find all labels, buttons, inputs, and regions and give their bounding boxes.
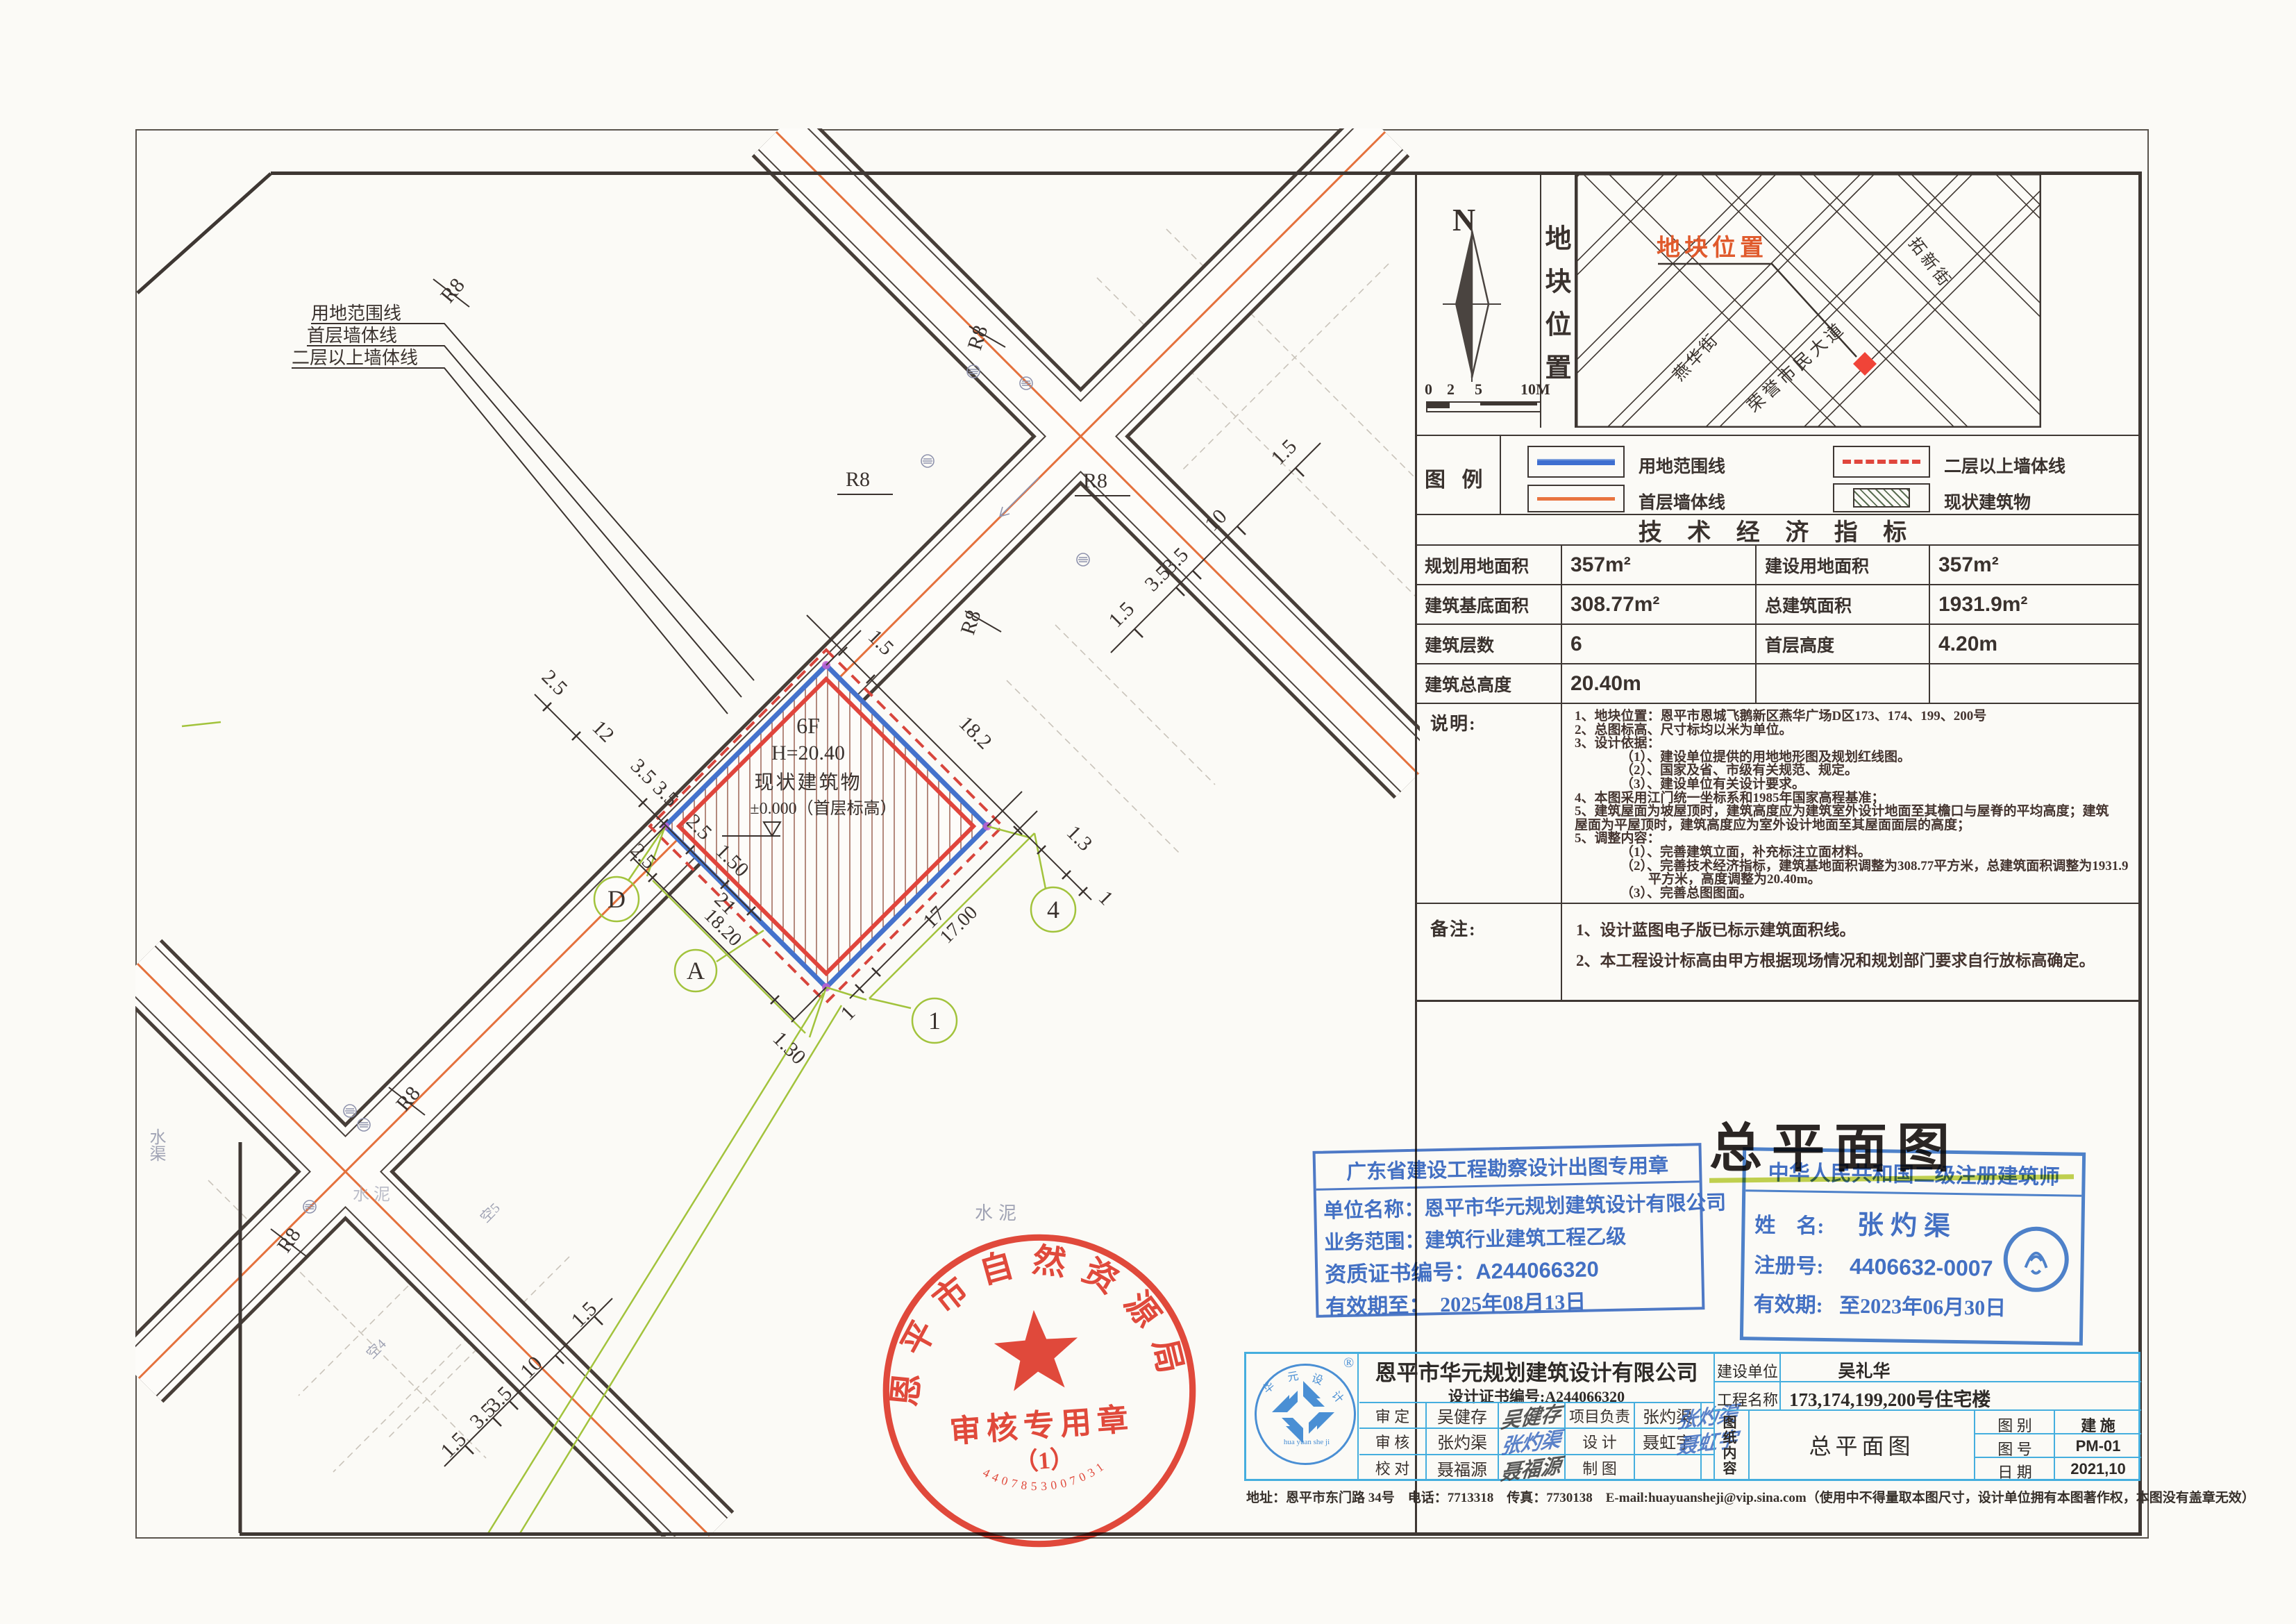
dim-label: 1.30 [768,1027,810,1069]
person-name: 张灼渠 [1427,1429,1499,1455]
notes-block: 1、地块位置：恩平市恩城飞鹅新区燕华广场D区173、174、199、200号 2… [1575,710,2138,900]
content-label: 图纸内容 [1718,1415,1738,1479]
dim-label: 1.5 [567,1297,601,1332]
project-name: 173,174,199,200号住宅楼 [1789,1384,1991,1412]
role-label: 审 定 [1359,1403,1427,1429]
indicator-value: 20.40m [1562,664,1757,704]
company-name: 恩平市华元规划建筑设计有限公司 [1359,1355,1713,1387]
indicator-label: 建设用地面积 [1757,546,1930,585]
building-name: 现状建筑物 [754,771,862,794]
scale-tick: 0 [1425,380,1432,399]
indicator-label [1757,664,1930,704]
dim-label: 1.3 [1062,821,1097,855]
legend-title-divider [1500,435,1501,514]
sheet-content: 总平面图 [1750,1429,1974,1461]
red-approval-stamp: 恩平市自然资源局 审核专用章 （1） 4407853007031 [865,1216,1214,1565]
registered-mark: ® [1343,1355,1354,1371]
red-stamp-number: （1） [1013,1445,1075,1476]
tb-line [2054,1411,2055,1479]
meta-key: 图 别 [1977,1414,2053,1436]
building-floors: 6F [796,713,820,738]
notes-label: 说明: [1430,710,1477,735]
architect-stamp-header: 中华人民共和国二级注册建筑师 [1745,1150,2082,1197]
scale-tick: 2 [1447,380,1455,399]
architect-valid: 至2023年06月30日 [1839,1294,2006,1320]
remark-line: 1、设计蓝图电子版已标示建筑面积线。 [1576,915,2095,946]
meta-key: 图 号 [1977,1437,2053,1459]
remarks-block: 1、设计蓝图电子版已标示建筑面积线。 2、本工程设计标高由甲方根据现场情况和规划… [1576,915,2095,976]
signature-grid: 审 定 吴健存 吴健存 项目负责 张灼渠 张灼渠 审 核 张灼渠 张灼渠 设 计… [1359,1403,1713,1481]
logo-latin: hua yuan she ji [1272,1438,1341,1446]
building-height: H=20.40 [771,742,845,764]
legend-top-border [1416,435,2138,436]
note-line: 3、设计依据： [1575,737,2138,751]
dim-label: 1 [1094,886,1118,910]
architect-seal-icon [2001,1224,2072,1295]
footer-contact-line: 地址：恩平市东门路 34号 电话：7713318 传真：7730138 E-ma… [1246,1487,2143,1506]
dim-label: 18.20 [700,905,746,951]
axis-bubble-1: 1 [928,1007,941,1035]
indicator-value: 6 [1562,625,1757,664]
star-icon [992,1307,1081,1393]
note-line: （3）、建设单位有关设计要求。 [1575,778,2138,792]
location-map: 地块位置 拓新街 燕华街 荣誉市民大道 [1576,174,2041,428]
company-logo-icon: 华 元 设 计 hua yuan she ji [1255,1364,1356,1465]
dim-label: 12 [587,716,619,747]
leader-first-floor: 首层墙体线 [307,326,397,346]
r8-label: R8 [846,468,870,491]
project-label: 工程名称 [1716,1388,1779,1410]
indicator-label: 建筑总高度 [1416,664,1562,704]
cement-label-2: 水泥 [353,1185,394,1204]
leader-upper-wall: 二层以上墙体线 [292,348,418,368]
architect-name-label: 姓 名: [1754,1214,1825,1238]
indicator-label: 规划用地面积 [1416,546,1562,585]
indicator-value: 308.77m² [1562,585,1757,625]
r8-label: R8 [956,608,985,637]
legend-label-first-floor: 首层墙体线 [1639,489,1725,514]
map-plot-label: 地块位置 [1657,235,1768,261]
role-label: 项目负责 [1566,1403,1635,1429]
architect-name: 张灼渠 [1857,1211,1958,1241]
parcel-label: 空5 [477,1200,503,1225]
dim-label: 1.5 [436,1428,471,1462]
meta-value: 建 施 [2056,1414,2140,1436]
tb-line [1357,1354,1359,1479]
note-line: （2）、完善技术经济指标，建筑基地面积调整为308.77平方米，总建筑面积调整为… [1575,860,2138,873]
meta-value: 2021,10 [2056,1460,2140,1478]
tb-line [1713,1354,1715,1479]
remark-line: 2、本工程设计标高由甲方根据现场情况和规划部门要求自行放标高确定。 [1576,946,2095,976]
note-line: （1）、完善建筑立面，补充标注立面材料。 [1575,846,2138,860]
note-line: 4、本图采用江门统一坐标系和1985年国家高程基准； [1575,792,2138,805]
remarks-top-border [1416,903,2138,904]
indicator-label: 建筑层数 [1416,625,1562,664]
r8-label: R8 [1083,469,1107,492]
role-label: 审 核 [1359,1429,1427,1455]
north-arrow-icon [1416,222,1541,396]
indicator-label: 建筑基底面积 [1416,585,1562,625]
legend-swatch-first-floor [1527,485,1625,512]
note-line: 5、建筑屋面为坡屋顶时，建筑高度应为建筑室外设计地面至其檐口与屋脊的平均高度；建… [1575,805,2138,819]
indicator-value [1930,664,2140,704]
note-line: 5、调整内容： [1575,832,2138,846]
role-label: 制 图 [1566,1455,1635,1481]
cement-label: 水泥 [975,1203,1022,1223]
note-line: 屋面为平屋顶时，建筑高度应为室外设计地面至其屋面面层的高度； [1575,819,2138,832]
design-license-stamp: 广东省建设工程勘察设计出图专用章 单位名称：恩平市华元规划建筑设计有限公司 业务… [1313,1143,1705,1318]
architect-reg-label: 注册号: [1754,1254,1824,1278]
note-line: （3）、完善总图图面。 [1575,887,2138,901]
dim-label: 17.00 [936,902,982,948]
dim-label: 2.5 [537,665,572,700]
note-line: （1）、建设单位提供的用地地形图及规划红线图。 [1575,751,2138,764]
dim-label: 1 [836,1001,860,1025]
remarks-divider [1561,903,1562,1000]
note-line: 1、地块位置：恩平市恩城飞鹅新区燕华广场D区173、174、199、200号 [1575,710,2138,723]
axis-bubble-A: A [687,957,705,985]
panel-bottom-border [1416,1000,2138,1002]
note-line: （2）、国家及省、市级有关规范、规定。 [1575,764,2138,778]
dim-label: 1.5 [1104,597,1139,632]
indicator-value: 357m² [1930,546,2140,585]
meta-key: 日 期 [1977,1460,2053,1482]
client-name: 吴礼华 [1781,1357,1947,1382]
indicator-value: 4.20m [1930,625,2140,664]
tb-line [1974,1411,1975,1479]
building-level: ±0.000（首层标高） [750,799,896,818]
legend-title: 图 例 [1425,462,1489,493]
legend-swatch-boundary [1527,446,1625,478]
site-plan-drawing: D A 1 4 1.5 18.2 1.3 1 17 17.00 1 21 18.… [135,128,1420,1537]
role-label: 校 对 [1359,1455,1427,1481]
water-channel-label: 水渠 [146,1128,166,1162]
legend-label-boundary: 用地范围线 [1639,453,1725,478]
meta-value: PM-01 [2056,1437,2140,1455]
indicators-table: 规划用地面积 357m² 建设用地面积 357m² 建筑基底面积 308.77m… [1416,546,2140,704]
person-name: 聂福源 [1427,1455,1499,1481]
indicators-title: 技 术 经 济 指 标 [1416,515,2138,546]
legend-swatch-existing [1833,483,1930,512]
legend-swatch-upper-wall [1833,446,1930,478]
remarks-label: 备注: [1430,915,1477,941]
dim-label: 18.2 [954,712,996,753]
role-label: 设 计 [1566,1429,1635,1455]
legend-label-existing: 现状建筑物 [1944,489,2031,514]
frame-right [2138,171,2142,1536]
dim-label: 3.5 [626,754,661,789]
red-stamp-title: 审核专用章 [948,1401,1134,1449]
scale-tick: 5 [1475,380,1482,399]
leader-boundary: 用地范围线 [311,303,401,324]
legend-label-upper-wall: 二层以上墙体线 [1944,453,2065,478]
wall-line-leaders: 用地范围线 首层墙体线 二层以上墙体线 [292,303,754,714]
location-panel-title: 地块位置 [1543,196,1575,425]
note-line: 平方米，高度调整为20.40m。 [1575,873,2138,887]
indicator-value: 1931.9m² [1930,585,2140,625]
architect-reg-no: 4406632-0007 [1850,1254,1993,1281]
notes-divider [1561,704,1562,903]
note-line: 2、总图标高、尺寸标均以米为单位。 [1575,723,2138,737]
client-label: 建设单位 [1716,1359,1779,1382]
indicator-label: 总建筑面积 [1757,585,1930,625]
axis-bubble-D: D [607,885,626,913]
indicator-value: 357m² [1562,546,1757,585]
title-block: 华 元 设 计 hua yuan she ji ® 恩平市华元规划建筑设计有限公… [1244,1352,2140,1481]
dim-label: 1.5 [1266,435,1301,469]
registered-architect-stamp: 中华人民共和国二级注册建筑师 姓 名: 张灼渠 注册号: 4406632-000… [1740,1147,2086,1346]
indicator-label: 首层高度 [1757,625,1930,664]
architect-valid-label: 有效期: [1753,1293,1823,1317]
person-name: 吴健存 [1427,1403,1499,1429]
axis-bubble-4: 4 [1047,896,1059,923]
person-name [1635,1455,1702,1481]
